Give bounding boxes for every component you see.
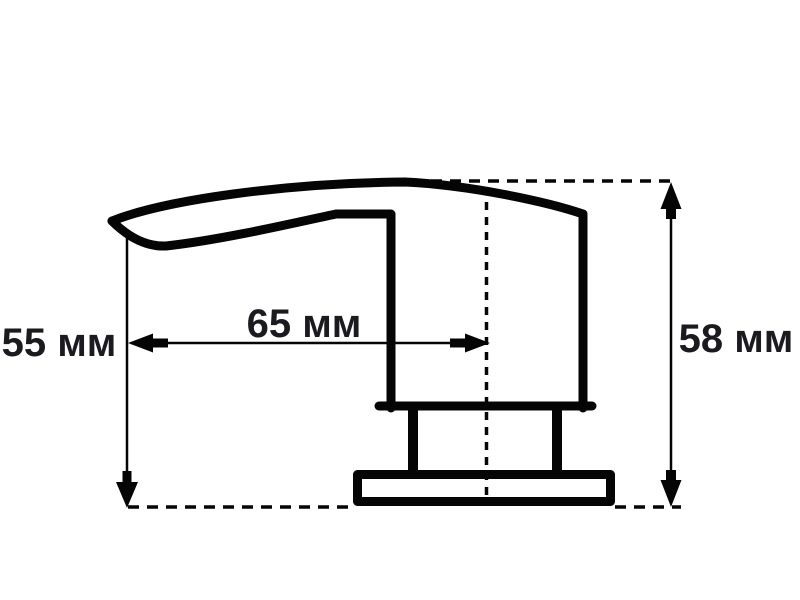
soap-dispenser-diagram: 55 мм 65 мм 58 мм bbox=[0, 0, 800, 600]
dimension-65mm-arrow-left-icon bbox=[128, 334, 168, 353]
dimension-58mm-arrow-up-icon bbox=[661, 182, 682, 219]
dimension-55mm-label: 55 мм bbox=[2, 321, 117, 365]
dimension-55mm: 55 мм bbox=[2, 229, 138, 508]
dimension-65mm-label: 65 мм bbox=[247, 302, 362, 346]
dimension-58mm-arrow-down-icon bbox=[661, 470, 682, 507]
dimension-55mm-arrow-down-icon bbox=[116, 471, 138, 508]
dimension-drawing-page: 55 мм 65 мм 58 мм bbox=[0, 0, 800, 600]
dimension-65mm: 65 мм bbox=[128, 302, 490, 353]
dimension-65mm-arrow-right-icon bbox=[450, 334, 490, 353]
dimension-58mm-label: 58 мм bbox=[679, 317, 794, 361]
dimension-58mm: 58 мм bbox=[661, 182, 794, 507]
base-flange bbox=[358, 475, 611, 502]
